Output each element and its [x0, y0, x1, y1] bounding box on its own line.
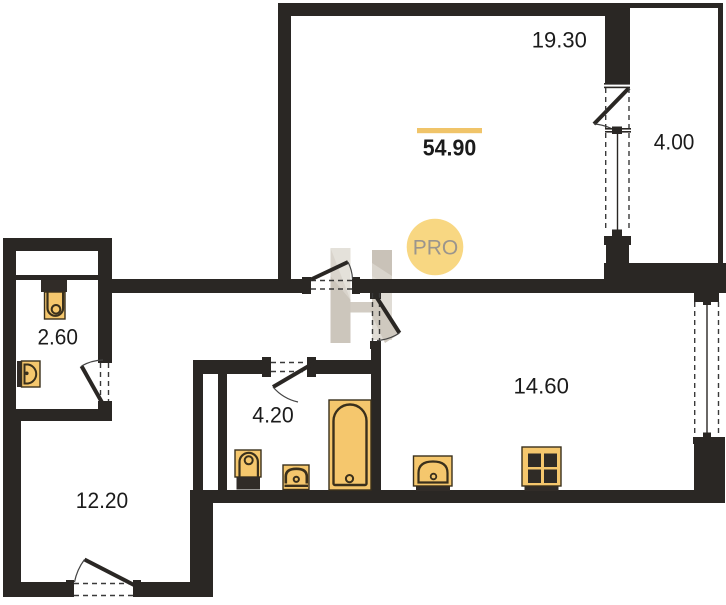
svg-text:19.30: 19.30 [532, 28, 587, 53]
svg-text:4.00: 4.00 [654, 129, 695, 154]
svg-text:2.60: 2.60 [37, 325, 78, 350]
svg-text:14.60: 14.60 [514, 373, 569, 398]
svg-text:54.90: 54.90 [423, 134, 476, 160]
svg-text:12.20: 12.20 [76, 488, 128, 513]
svg-text:4.20: 4.20 [252, 403, 294, 428]
svg-text:PRO: PRO [413, 237, 459, 260]
